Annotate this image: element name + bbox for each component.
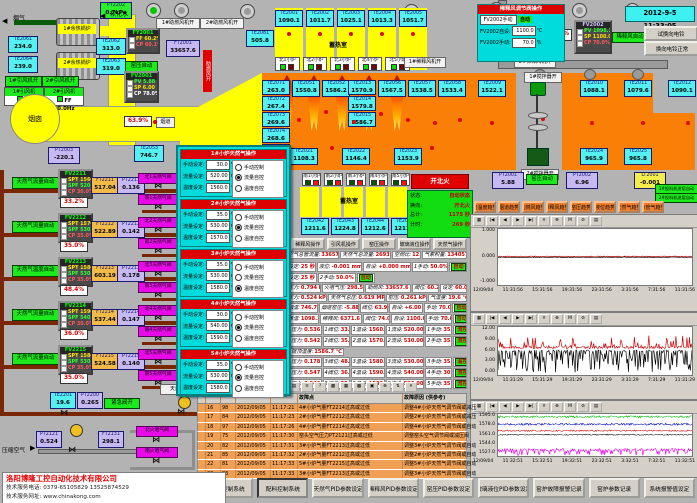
trend-button[interactable]: 液位趋势 [594, 201, 616, 213]
gas-valve-row: 天然气流量自动 FV2215 SPT 1580.0 SPF 530.00 CP … [0, 344, 202, 388]
operation-button[interactable]: 引风机操作 [327, 238, 361, 250]
mode-radio[interactable]: 手动控制 [235, 312, 281, 323]
setpoint-input[interactable]: 1590.0 [206, 333, 230, 343]
alarm-toolbar-icon[interactable]: ▦ [340, 382, 352, 392]
radio-dot-icon[interactable] [235, 174, 242, 181]
operation-button[interactable]: 窑压操作 [362, 238, 396, 250]
data-cell: 流控 [453, 325, 467, 335]
y-tick: 0.00 [485, 369, 495, 374]
alarm-toolbar-icon[interactable]: ▩ [327, 382, 339, 392]
gas-operation-section: 2#小炉天然气操作 手动设定: 35.0 % 流量设定: 530.00 m³/h… [180, 199, 287, 247]
gas-flow-controller[interactable]: FV2214 SPT 1590.0 SPF 540.00 CP 30.0% [58, 301, 93, 331]
valve-icon[interactable]: ⋈ [154, 314, 162, 322]
te-box: TE20101088.1 [580, 80, 608, 97]
status-row: 状态:自动状态 [410, 192, 470, 202]
setpoint-input[interactable]: 35.0 [206, 260, 230, 270]
setpoint-input[interactable]: 35.0 [206, 210, 230, 220]
data-cell: 2手动:50.0% [318, 273, 356, 283]
radio-label: 手动控制 [244, 164, 264, 171]
data-cell: 烟道窑压:-5.88 Pa [319, 303, 359, 313]
valve-icon[interactable]: ⋈ [154, 247, 162, 255]
data-cell: 温控 [453, 357, 467, 367]
chart-toolbar-icon[interactable]: ✕ [538, 402, 550, 412]
chart-toolbar-icon[interactable]: ⊘ [577, 314, 589, 324]
data-cell: 手动:70.0% [424, 303, 451, 313]
radio-label: 手动控制 [244, 314, 264, 321]
data-row: 设定:25 秒2手动:50.0%自动 [286, 273, 467, 283]
measure-point-dot [349, 32, 353, 36]
chart-toolbar-icon[interactable]: |◀ [486, 216, 498, 226]
measure-point-dot [287, 32, 291, 36]
data-cell: 2流设:530.00 m³/h [386, 336, 425, 346]
x-tick: 11:31:29 [675, 378, 695, 383]
gas-flow-controller[interactable]: FV2213 SPT 1580.0 SPF 530.00 CP 35.0% [58, 257, 93, 287]
section-title: 1#小炉天然气操作 [181, 150, 286, 159]
mode-radio[interactable]: 温度自控 [235, 333, 281, 344]
data-cell: 自动 [449, 262, 467, 272]
gas-auto-mode-label: 天然气流量自动 [12, 221, 59, 233]
fan-icon [572, 3, 587, 18]
fault-column-header: 故障点 [298, 394, 403, 403]
bell-normal-button[interactable]: 换向电铃正常 [644, 41, 697, 56]
radio-dot-icon[interactable] [235, 185, 242, 192]
field-label: 流量设定: [183, 273, 205, 280]
chart-toolbar-icon[interactable]: ▶| [525, 216, 537, 226]
regen-south-label: 蓄热室 [340, 196, 358, 205]
valve-icon[interactable]: ⋈ [154, 270, 162, 278]
x-tick: 19:31:56 [562, 288, 582, 293]
compressed-air-arrow-icon: ▶ [30, 444, 35, 452]
radio-dot-icon[interactable] [235, 164, 242, 171]
alarm-row[interactable]: 1784 2012/09/0511:17:23 2#小炉气量FT2212过高或过… [197, 413, 467, 422]
data-cell: 自设:+0.000 mm [363, 262, 411, 272]
data-cell: 天然气总压:0.619 MPa [328, 294, 385, 302]
mode-radio[interactable]: 温度自控 [235, 233, 281, 244]
data-cell: 4流设:540.00 m³/h [386, 368, 425, 378]
gas-flow-controller[interactable]: FV2212 SPT 1570.0 SPF 530.00 CP 35.0% [58, 213, 93, 243]
gas-operation-popup[interactable]: 1#小炉天然气操作 手动设定: 30.0 % 流量设定: 520.00 m³/h… [176, 145, 291, 396]
alarm-row[interactable]: 2185 2012/09/0511:17:32 2#小炉气量FT2212过高或过… [197, 451, 467, 460]
chart-toolbar-icon[interactable]: ▶ [512, 402, 524, 412]
mode-radio[interactable]: 流量自控 [235, 173, 281, 184]
radio-label: 温度自控 [244, 185, 264, 192]
data-cell: 3手动:35.0% [425, 357, 452, 367]
trend-button[interactable]: 窑压趋势 [570, 201, 592, 213]
setpoint-input[interactable]: 1570.0 [206, 233, 230, 243]
gas-operation-section: 1#小炉天然气操作 手动设定: 30.0 % 流量设定: 520.00 m³/h… [180, 149, 287, 197]
x-tick: 19:32:51 [562, 459, 582, 464]
alarm-row[interactable]: 1975 2012/09/0511:17:30 窑头空气压力PT2121过高或过… [197, 432, 467, 441]
data-row: 设定:25 秒液位:-0.001 mm自设:+0.000 mm1手动:50.0%… [286, 262, 467, 272]
chart-toolbar-icon[interactable]: ▤ [590, 402, 602, 412]
te-box: TE20221146.4 [342, 148, 370, 165]
alarm-toolbar-icon[interactable]: ✕ [405, 382, 417, 392]
valve-icon[interactable]: ⋈ [152, 436, 160, 444]
mode-radio-group: 手动控制 流量自控 温度自控 [232, 310, 284, 348]
alarm-row[interactable]: 2082 2012/09/0511:17:31 3#小炉气量FT2213过高或过… [197, 442, 467, 451]
te-box: TE2072267.4 [262, 96, 290, 111]
manifold-hanger-2 [584, 69, 596, 80]
stirrer-motor [530, 82, 546, 96]
fan-icon [146, 3, 161, 18]
setpoint-input[interactable]: 530.00 [206, 371, 230, 381]
fv2002-auto-badge: 自动 [518, 16, 532, 23]
north-port[interactable]: 北4小炉 [358, 57, 383, 71]
chart-toolbar-icon[interactable]: |◀ [486, 314, 498, 324]
data-cell: 自动 [357, 273, 375, 283]
data-cell: 压力:0.794 kPa [286, 284, 321, 292]
chart-toolbar-icon[interactable]: |◀ [486, 402, 498, 412]
south-port[interactable]: 南1小炉 [302, 173, 321, 186]
te-box: TE20121090.1 [668, 80, 696, 97]
data-cell: 自设:+6.00 Pa [389, 303, 422, 313]
chart-toolbar: ▦|◀◀▶▶|✕⊕M⊘▤ [471, 215, 697, 228]
radio-label: 手动控制 [244, 364, 264, 371]
chart-toolbar-icon[interactable]: ◀ [499, 402, 511, 412]
radio-dot-icon[interactable] [235, 324, 242, 331]
comb-fan1-on-label: 1#助燃风机开 [156, 18, 200, 29]
stirrer-disc [528, 112, 548, 119]
trend-button[interactable]: 天然气趋势 [618, 201, 640, 213]
nav-button[interactable]: 玻璃液位PID参数设定 [478, 478, 529, 498]
mode-radio[interactable]: 温度自控 [235, 283, 281, 294]
x-tick: 7:31:56 [648, 288, 665, 293]
north-port[interactable]: 北2小炉 [303, 57, 328, 71]
ft2131-box: FT2131298.1 [98, 431, 124, 448]
setpoint-input[interactable]: 530.00 [206, 221, 230, 231]
trend-button[interactable]: 稀释风趋势 [546, 201, 568, 213]
alarm-toolbar-icon[interactable]: ? [314, 382, 326, 392]
nav-button[interactable]: 窑炉故障报警记录 [533, 478, 584, 498]
status-row: 计时:269 秒 [410, 221, 470, 231]
chart-toolbar-icon[interactable]: M [564, 216, 576, 226]
air-valve-actuator-icon [70, 424, 83, 437]
chart-toolbar-icon[interactable]: ▤ [590, 216, 602, 226]
te2009-box: TE20091522.1 [478, 80, 506, 97]
x-tick: 11:31:29 [503, 378, 523, 383]
te-box: TE20041013.3 [368, 10, 396, 27]
valve-icon[interactable]: ⋈ [154, 226, 162, 234]
chart-toolbar-icon[interactable]: M [564, 402, 576, 412]
mode-radio[interactable]: 手动控制 [235, 362, 281, 373]
te-box: TE20511550.8 [292, 80, 320, 97]
kiln-auto-label-2: 窑压自动 [526, 174, 558, 185]
y-tick: 3.00 [485, 358, 495, 363]
dilution-auto-label: 稀释风自动 [612, 32, 648, 43]
radio-label: 流量自控 [244, 224, 264, 231]
chart-toolbar-icon[interactable]: ⊕ [551, 402, 563, 412]
mode-radio[interactable]: 手动控制 [235, 212, 281, 223]
x-tick: 7:32:51 [648, 459, 665, 464]
data-cell: 3流设:530.00 m³/h [386, 357, 425, 367]
data-cell: 1温设:1560.0 ℃ [351, 325, 385, 335]
radio-dot-icon[interactable] [235, 224, 242, 231]
te-box: TE20011090.1 [275, 10, 303, 27]
field-label: 手动设定: [183, 311, 205, 318]
te-box: TE20211108.3 [290, 148, 318, 165]
nav-button[interactable]: 配料控制系统 [257, 478, 308, 498]
chart-toolbar-icon[interactable]: M [564, 314, 576, 324]
te-box: TE20561567.5 [378, 80, 406, 97]
chart-toolbar-icon[interactable]: ▦ [473, 314, 485, 324]
field-label: 流量设定: [183, 223, 205, 230]
mode-radio[interactable]: 流量自控 [235, 323, 281, 334]
radio-dot-icon[interactable] [235, 314, 242, 321]
radio-dot-icon[interactable] [235, 335, 242, 342]
valve-icon[interactable]: ⋈ [154, 335, 162, 343]
mode-radio-group: 手动控制 流量自控 温度自控 [232, 260, 284, 298]
mode-radio[interactable]: 流量自控 [235, 223, 281, 234]
total-cell: 天然气总流量:2693.4 m³/h [340, 251, 391, 259]
status-row: 总计:1175 秒 [410, 211, 470, 221]
x-tick: 15:32:51 [532, 459, 552, 464]
gas-auto-mode-label: 天然气流量自动 [12, 353, 59, 365]
y-tick: 1544.0 [479, 441, 495, 446]
x-tick: 15:31:56 [532, 288, 552, 293]
te-box: TE20111079.6 [624, 80, 652, 97]
section-title: 4#小炉天然气操作 [181, 300, 286, 309]
te2201-box: TE220119.6 [50, 392, 76, 409]
valve-icon[interactable]: ⋈ [154, 358, 162, 366]
dilution-panel-title: 稀释风调节阀操作 [478, 5, 564, 14]
radio-label: 温度自控 [244, 235, 264, 242]
chart-toolbar-icon[interactable]: ✕ [538, 314, 550, 324]
nav-button[interactable]: 窑压PID参数设定 [423, 478, 474, 498]
valve-icon[interactable]: ⋈ [154, 182, 162, 190]
trend-button[interactable]: 烟道趋势 [498, 201, 520, 213]
radio-dot-icon[interactable] [235, 385, 242, 392]
x-tick: 11:32:51 [503, 459, 523, 464]
id-fan2-on-label: 2#引风机开 [42, 76, 79, 87]
nav-button[interactable]: 稀释风PID参数设定 [368, 478, 419, 498]
temperature-trend-plot[interactable] [497, 413, 693, 457]
trend-button[interactable]: 助燃风趋势 [522, 201, 544, 213]
fan-icon [174, 3, 189, 18]
gas-valve-row: 天然气流量自动 FV2211 SPT 1560.0 SPF 520.00 CP … [0, 168, 202, 212]
mode-radio[interactable]: 手动控制 [235, 162, 281, 173]
te-box: TE2073269.6 [262, 112, 290, 127]
fv2002-controller: FV2002 PV 1098.1 SP 1100.0 CP 70.0% [574, 20, 612, 54]
chart-toolbar-icon[interactable]: ▦ [473, 216, 485, 226]
pressure-trend-plot[interactable] [497, 326, 693, 376]
measure-point-dot [318, 32, 322, 36]
radio-dot-icon[interactable] [235, 364, 242, 371]
radio-dot-icon[interactable] [235, 374, 242, 381]
stirrer-motor-lower [527, 148, 549, 166]
chart-toolbar-icon[interactable]: ▶| [525, 402, 537, 412]
data-cell: 4压力:0.547 MPa [286, 368, 322, 378]
te-box: TE20421211.6 [301, 218, 329, 235]
gas-valve-position: 36.0% [60, 329, 88, 340]
reversal-status-panel: 状态:自动状态换向:开北火总计:1175 秒计时:269 秒 [407, 190, 473, 238]
te-box: TE20051051.7 [399, 10, 427, 27]
north-port-row: 北1小炉北2小炉北3小炉北4小炉北5小炉 [275, 57, 410, 71]
trend-button[interactable]: 窑温度趋势 [474, 201, 496, 213]
trend-button[interactable]: 分管气趋势 [642, 201, 664, 213]
mode-radio[interactable]: 温度自控 [235, 383, 281, 394]
bell-test-button[interactable]: 试换向电铃 [644, 26, 697, 41]
boiler-1-label: 1#余热锅炉 [58, 24, 96, 34]
gas-valve-row: 天然气流量自动 FV2214 SPT 1590.0 SPF 540.00 CP … [0, 300, 202, 344]
open-north-fire-button[interactable]: 开北火 [411, 174, 469, 189]
gas-flow-controller[interactable]: FV2215 SPT 1580.0 SPF 530.00 CP 35.0% [58, 345, 93, 375]
setpoint-input[interactable]: 30.0 [206, 310, 230, 320]
chart-toolbar-icon[interactable]: ▤ [590, 314, 602, 324]
alarm-toolbar-icon[interactable]: ≡ [301, 382, 313, 392]
soft-water-label: 软化水 [110, 9, 128, 18]
valve-icon[interactable]: ⋈ [154, 203, 162, 211]
section-title: 5#小炉天然气操作 [181, 350, 286, 359]
crown-temps-a: TE20511550.8TE20521586.2 [292, 80, 350, 97]
trend-buttons: 窑温度趋势烟道趋势助燃风趋势稀释风趋势窑压趋势液位趋势天然气趋势分管气趋势 [474, 201, 664, 213]
setpoint-input[interactable]: 1580.0 [206, 383, 230, 393]
setpoint-input[interactable]: 30.0 [206, 160, 230, 170]
south-port[interactable]: 南3小炉 [346, 173, 365, 186]
vendor-name: 洛阳博隆工控自动化技术有限公司 [6, 474, 222, 484]
valve-icon[interactable]: ⋈ [60, 409, 68, 417]
chart-toolbar-icon[interactable]: ▶ [512, 216, 524, 226]
north-port[interactable]: 北3小炉 [330, 57, 355, 71]
setpoint-input[interactable]: 530.00 [206, 271, 230, 281]
total-cell: 空气总管流量:33657.6 m³/h [286, 251, 339, 259]
y-tick: -1.000 [480, 279, 495, 284]
emergency-valve-open-label: 紧急阀开 [104, 398, 140, 409]
radio-dot-icon[interactable] [235, 274, 242, 281]
operation-button[interactable]: 天然气操作 [433, 238, 467, 250]
y-tick: 1.000 [482, 228, 495, 233]
mode-radio[interactable]: 温度自控 [235, 183, 281, 194]
radio-dot-icon[interactable] [235, 235, 242, 242]
te2062-box: TE2062313.0 [96, 38, 126, 55]
nav-button[interactable]: 天然气PID参数设定 [312, 478, 363, 498]
gas-valve-position: 35.0% [60, 373, 88, 384]
setpoint-input[interactable]: 540.00 [206, 321, 230, 331]
y-tick: 12.00 [482, 326, 495, 331]
data-cell: 1阀位:33.2% [323, 325, 350, 335]
x-tick: 15:31:29 [532, 378, 552, 383]
manifold-hanger-3 [632, 69, 644, 80]
total-cell: 气累积量:134057.7 m³ [422, 251, 467, 259]
chart-toolbar-icon[interactable]: ▶| [525, 314, 537, 324]
south-port[interactable]: 南2小炉 [324, 173, 343, 186]
radio-dot-icon[interactable] [235, 214, 242, 221]
data-cell: 2阀位:35.0% [323, 336, 350, 346]
chart-toolbar-icon[interactable]: ◀ [499, 314, 511, 324]
gas-valve-position: 33.2% [60, 197, 88, 208]
alarm-toolbar-icon[interactable]: ⊕ [379, 382, 391, 392]
alarm-row[interactable]: 1698 2012/09/0511:17:21 4#小炉气量FT2214过高或过… [197, 404, 467, 413]
reason-column-header: 故障原因 (供参考) [403, 394, 476, 403]
comb-fan2-on-label: 2#助燃风机开 [200, 18, 244, 29]
alarm-row[interactable]: 2281 2012/09/0511:17:33 5#小炉气量FT2215过高或过… [197, 460, 467, 469]
field-label: 流量设定: [183, 323, 205, 330]
setpoint-input[interactable]: 1580.0 [206, 283, 230, 293]
radio-dot-icon[interactable] [235, 264, 242, 271]
field-label: 流量设定: [183, 373, 205, 380]
south-port[interactable]: 南5小炉 [391, 173, 410, 186]
data-cell: 流控 [453, 336, 467, 346]
fv2002-manual-button[interactable]: FV2002手动 [480, 15, 517, 25]
data-cell: 2压力:0.542 MPa [286, 336, 322, 346]
pt2003-box: PT2003-220.1 [48, 147, 80, 164]
te-box: TE2025965.8 [624, 148, 652, 165]
mode-radio[interactable]: 流量自控 [235, 273, 281, 284]
gas-flow-box: FT2212522.89 [91, 221, 119, 238]
operation-button[interactable]: 稀释风操作 [291, 238, 325, 250]
data-cell: 2温设:1570.0 ℃ [351, 336, 385, 346]
te-box: TE20141579.8 [348, 96, 376, 111]
chart-toolbar-icon[interactable]: ⊕ [551, 216, 563, 226]
alarm-table: 故障点 故障原因 (供参考) 1698 2012/09/0511:17:21 4… [197, 393, 467, 479]
flue-damper-position: 63.9% [124, 116, 152, 127]
chart-toolbar-icon[interactable]: ▶ [512, 314, 524, 324]
data-row: 2压力:0.542 MPa2阀位:35.0%2温设:1570.0 ℃2流设:53… [286, 336, 467, 346]
data-cell: 1流设:520.00 m³/h [386, 325, 425, 335]
chart-toolbar-icon[interactable]: ⊘ [577, 216, 589, 226]
vendor-website[interactable]: 技术服务网址: www.chinakong.com [6, 493, 222, 502]
totals-bar: 空气总管流量:33657.6 m³/h天然气总流量:2693.4 m³/h空燃比… [286, 251, 467, 259]
setpoint-input[interactable]: 35.0 [206, 360, 230, 370]
fv2002-manual-input[interactable]: 70.0 [512, 38, 536, 48]
y-tick: 1578.0 [479, 422, 495, 427]
id-fan1-on-label: 1#引风机开 [5, 76, 42, 87]
nav-button[interactable]: 系统报警值设定 [644, 478, 695, 498]
data-cell: 4温设:1590.0 ℃ [351, 368, 385, 378]
mode-radio-group: 手动控制 流量自控 温度自控 [232, 360, 284, 398]
nav-button[interactable]: 窑炉参数记录 [589, 478, 640, 498]
chart-toolbar-icon[interactable]: ✕ [538, 216, 550, 226]
valve-icon[interactable]: ⋈ [152, 457, 160, 465]
valve-icon[interactable]: ⋈ [177, 408, 185, 416]
field-label: 手动设定: [183, 211, 205, 218]
data-cell: 4阀位:36.0% [323, 368, 350, 378]
gas-flow-controller[interactable]: FV2211 SPT 1560.0 SPF 520.00 CP 30.0% [58, 169, 93, 199]
gas-operation-section: 4#小炉天然气操作 手动设定: 30.0 % 流量设定: 540.00 m³/h… [180, 299, 287, 347]
gas-valve-rows: 天然气流量自动 FV2211 SPT 1560.0 SPF 520.00 CP … [0, 168, 202, 390]
te2063-box: TE2063319.0 [96, 58, 126, 75]
mode-radio[interactable]: 手动控制 [235, 262, 281, 273]
north-port[interactable]: 北1小炉 [275, 57, 300, 71]
alarm-row[interactable]: 1897 2012/09/0511:17:26 4#小炉气量FT2214过高或过… [197, 423, 467, 432]
data-cell: 手动:70.0% [426, 314, 452, 324]
x-date: 12/09/04 [473, 288, 493, 293]
radio-label: 流量自控 [244, 174, 264, 181]
valve-icon[interactable]: ⋈ [154, 291, 162, 299]
level-trend-plot[interactable] [497, 228, 693, 286]
status-row: 换向:开北火 [410, 202, 470, 212]
data-row: 烟温:746.7 ℃烟道窑压:-5.88 Pa阀位:63.9 %自设:+6.00… [286, 303, 467, 313]
alarm-toolbar-icon[interactable]: ▩ [353, 382, 365, 392]
pt2121-box: PT21210.524 [36, 431, 62, 448]
radio-dot-icon[interactable] [235, 285, 242, 292]
mode-radio-group: 手动控制 流量自控 温度自控 [232, 160, 284, 198]
south-port[interactable]: 南4小炉 [369, 173, 388, 186]
data-cell: 气温度:19.6 ℃ [428, 294, 467, 302]
operation-button[interactable]: 玻璃液位操作 [398, 238, 432, 250]
chart-toolbar-icon[interactable]: ⊕ [551, 314, 563, 324]
setpoint-input[interactable]: 520.00 [206, 171, 230, 181]
chart-toolbar-icon[interactable]: ⊘ [577, 402, 589, 412]
setpoint-input[interactable]: 1560.0 [206, 183, 230, 193]
alarm-toolbar-icon[interactable]: ⇅ [392, 382, 404, 392]
chart-toolbar-icon[interactable]: ◀ [499, 216, 511, 226]
mode-radio[interactable]: 流量自控 [235, 373, 281, 384]
te-box: TE20581533.4 [438, 80, 466, 97]
valve-icon[interactable]: ⋈ [68, 446, 76, 454]
alarm-toolbar-icon[interactable]: ▣ [366, 382, 378, 392]
radio-label: 流量自控 [244, 274, 264, 281]
fv2002-setpoint-input[interactable]: 1100.0 [512, 26, 536, 36]
